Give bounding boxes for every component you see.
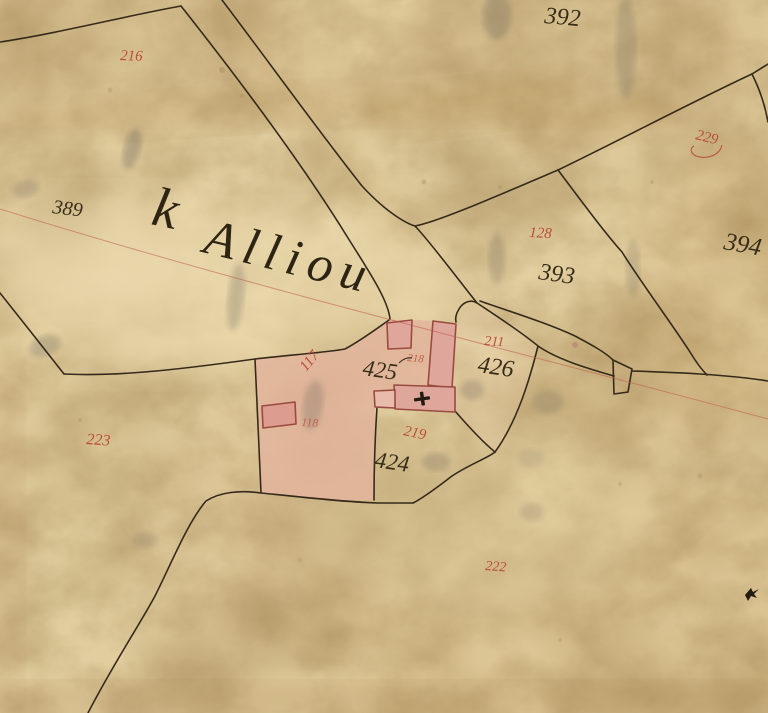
svg-text:424: 424: [373, 447, 411, 477]
svg-text:389: 389: [50, 196, 83, 222]
svg-text:216: 216: [120, 48, 144, 65]
svg-text:211: 211: [484, 334, 505, 350]
svg-text:218: 218: [407, 352, 425, 365]
svg-text:393: 393: [536, 259, 576, 290]
svg-text:425: 425: [361, 355, 399, 385]
svg-text:223: 223: [86, 431, 111, 450]
svg-text:128: 128: [529, 225, 553, 242]
svg-text:426: 426: [476, 352, 515, 383]
svg-text:222: 222: [485, 559, 507, 575]
svg-text:392: 392: [542, 3, 581, 32]
svg-text:118: 118: [301, 415, 319, 430]
